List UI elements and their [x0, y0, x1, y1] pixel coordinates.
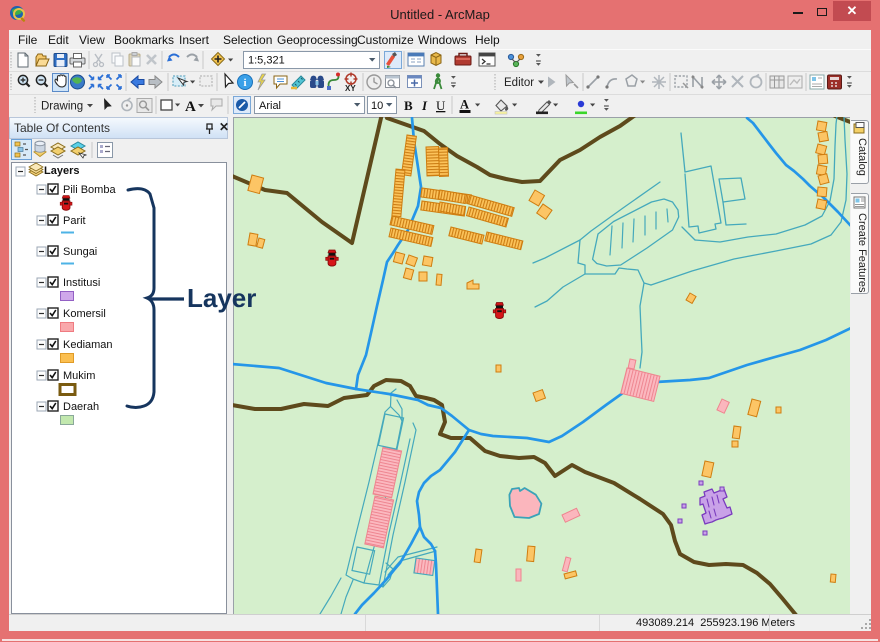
svg-text:i: i: [244, 77, 247, 89]
svg-text:A: A: [460, 98, 469, 112]
svg-text:Komersil: Komersil: [63, 308, 106, 320]
svg-text:Layers: Layers: [44, 165, 79, 177]
svg-text:I: I: [421, 98, 428, 113]
svg-text:Parit: Parit: [63, 215, 86, 227]
svg-text:B: B: [404, 98, 413, 113]
svg-text:Drawing: Drawing: [41, 101, 83, 113]
svg-text:Sungai: Sungai: [63, 246, 97, 258]
svg-text:Mukim: Mukim: [63, 370, 95, 382]
svg-text:10: 10: [371, 100, 383, 112]
svg-text:Arial: Arial: [259, 100, 281, 112]
svg-text:Editor: Editor: [504, 77, 534, 89]
svg-text:XY: XY: [345, 84, 356, 93]
svg-text:1:5,321: 1:5,321: [248, 55, 285, 67]
svg-text:U: U: [436, 98, 446, 113]
svg-text:Institusi: Institusi: [63, 277, 100, 289]
svg-text:Daerah: Daerah: [63, 401, 99, 413]
svg-text:Kediaman: Kediaman: [63, 339, 113, 351]
svg-text:Pili Bomba: Pili Bomba: [63, 184, 116, 196]
svg-text:A: A: [185, 99, 196, 115]
